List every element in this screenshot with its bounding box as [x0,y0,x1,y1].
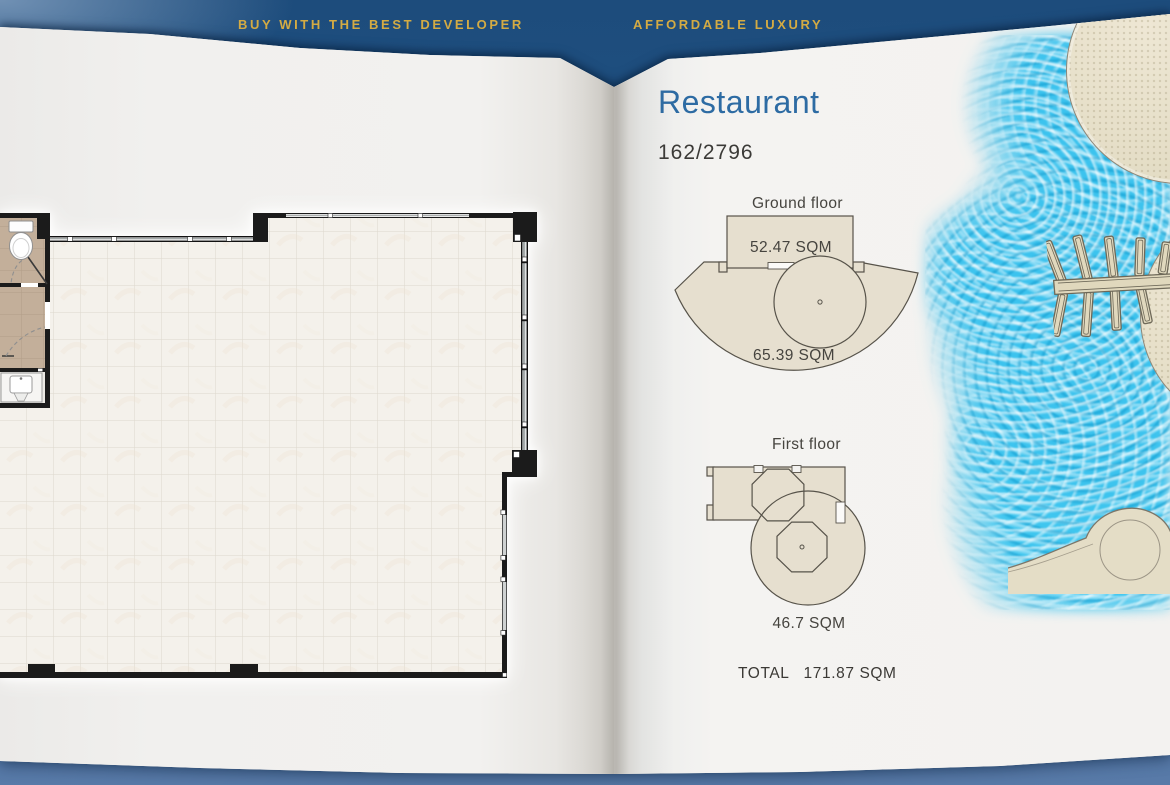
main-hall-floor [0,218,521,672]
floor-plan-drawing [0,205,545,685]
total-value: 171.87 SQM [804,665,897,682]
window-wall-top-left [50,236,253,242]
first-floor-area: 46.7 SQM [741,615,877,633]
brochure-page: BUY WITH THE BEST DEVELOPER AFFORDABLE L… [0,0,1170,785]
unit-number: 162/2796 [658,141,754,165]
sink-icon [1,373,42,402]
total-label: TOTAL [738,665,790,682]
open-brochure: Restaurant 162/2796 Ground floor 52.47 S… [0,0,1170,785]
ground-floor-lower-area: 65.39 SQM [726,347,862,365]
ground-floor-label: Ground floor [720,195,875,213]
sand-dune-icon [1008,498,1170,594]
page-title: Restaurant [658,84,820,121]
ground-floor-upper-area: 52.47 SQM [723,239,859,257]
first-floor-diagram [690,455,890,640]
toilet-icon [9,221,33,260]
pier-icon [1045,214,1170,349]
total-area-row: TOTAL171.87 SQM [738,665,897,683]
first-floor-label: First floor [729,436,884,454]
book-pages: Restaurant 162/2796 Ground floor 52.47 S… [0,0,1170,785]
